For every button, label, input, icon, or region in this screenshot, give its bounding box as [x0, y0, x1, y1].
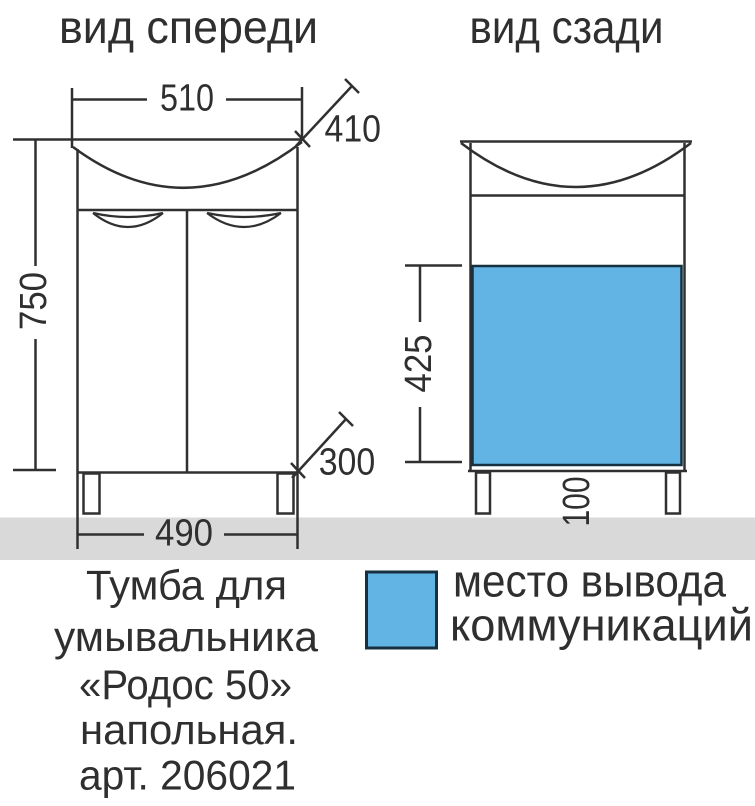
svg-text:750: 750	[13, 272, 55, 330]
svg-text:коммуникаций: коммуникаций	[450, 600, 753, 651]
svg-text:вид спереди: вид спереди	[59, 1, 318, 53]
svg-text:100: 100	[556, 477, 598, 527]
svg-text:Тумба для: Тумба для	[86, 562, 287, 609]
svg-text:510: 510	[160, 78, 214, 120]
svg-text:«Родос 50»: «Родос 50»	[79, 661, 292, 708]
svg-text:490: 490	[155, 513, 213, 555]
svg-text:напольная.: напольная.	[80, 706, 298, 753]
svg-text:арт. 206021: арт. 206021	[79, 752, 296, 799]
svg-text:умывальника: умывальника	[54, 613, 319, 660]
svg-text:410: 410	[325, 109, 382, 151]
svg-text:вид сзади: вид сзади	[470, 1, 664, 53]
svg-text:425: 425	[398, 335, 440, 393]
svg-text:300: 300	[319, 442, 376, 484]
